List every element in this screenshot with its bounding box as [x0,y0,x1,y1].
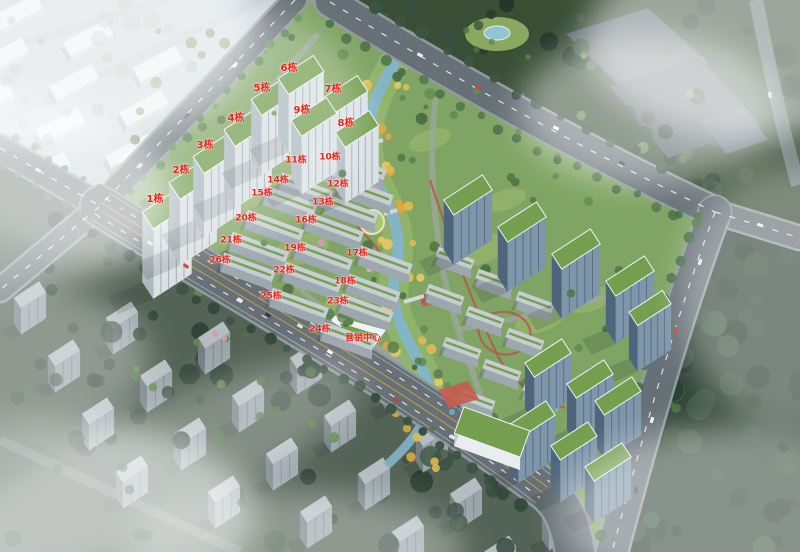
site-plan-rendering [0,0,800,552]
atmosphere-veil [0,0,800,552]
aerial-rendering: 1栋2栋3栋4栋5栋6栋7栋8栋9栋10栋11栋12栋13栋14栋15栋16栋1… [0,0,800,552]
